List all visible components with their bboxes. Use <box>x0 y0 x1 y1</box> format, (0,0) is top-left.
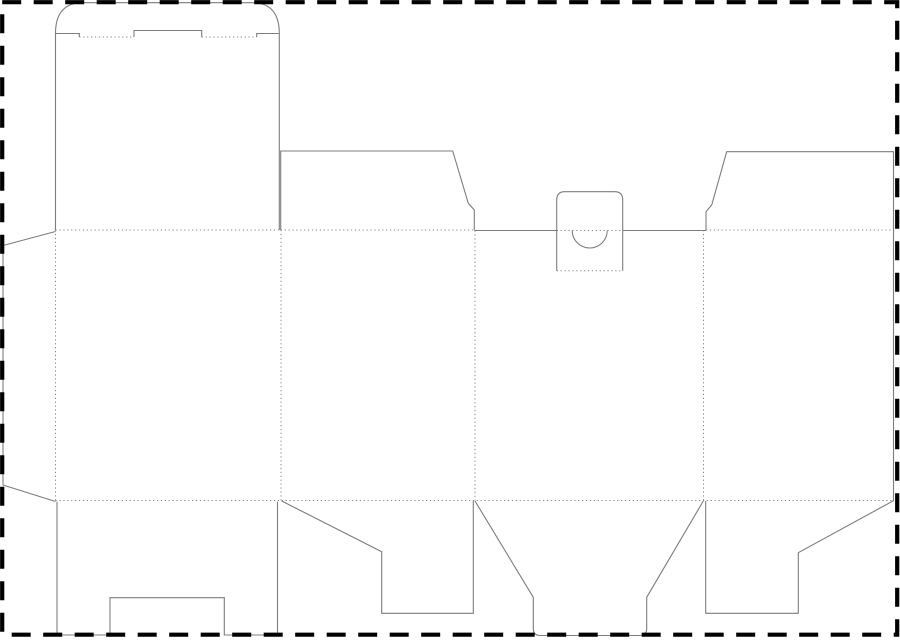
dieline-canvas <box>0 0 900 641</box>
dieline-svg <box>0 0 900 641</box>
background <box>0 0 900 641</box>
